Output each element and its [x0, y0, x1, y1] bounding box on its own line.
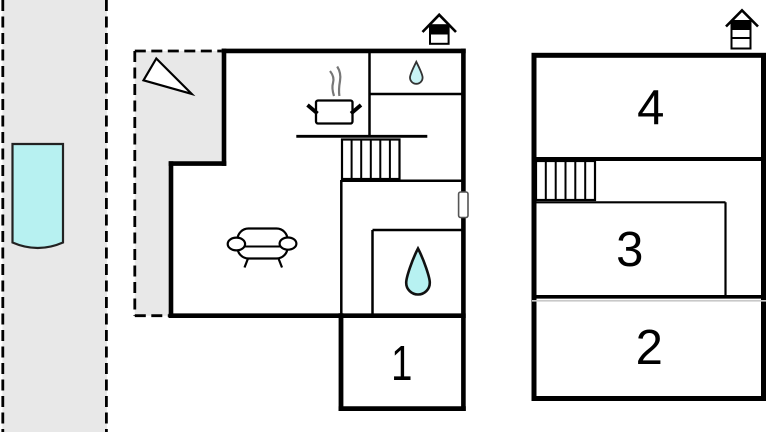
svg-text:2: 2	[636, 321, 663, 375]
svg-text:4: 4	[637, 81, 664, 135]
svg-text:1: 1	[391, 337, 412, 392]
svg-text:3: 3	[616, 223, 643, 277]
